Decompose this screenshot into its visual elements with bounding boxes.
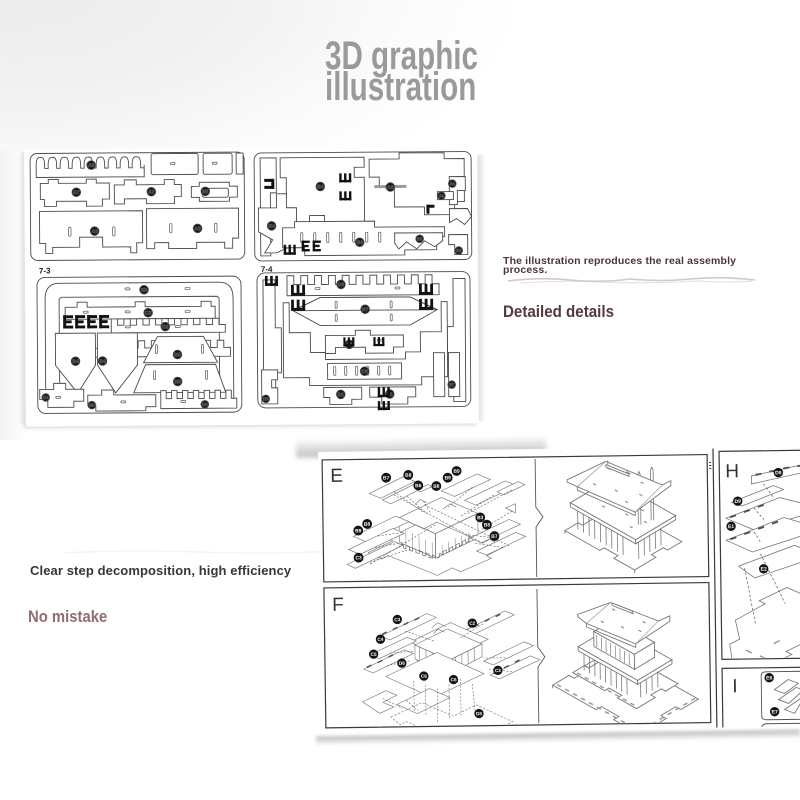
svg-text:D9: D9 <box>775 470 782 476</box>
svg-text:D6: D6 <box>399 661 405 666</box>
svg-text:D8: D8 <box>338 282 345 288</box>
svg-text:I: I <box>732 676 738 697</box>
svg-text:B9: B9 <box>445 475 452 481</box>
svg-text:A9: A9 <box>88 163 95 169</box>
svg-text:B4: B4 <box>72 359 79 365</box>
svg-text:C2: C2 <box>469 621 475 626</box>
svg-text:E7: E7 <box>772 709 778 715</box>
svg-text:E6: E6 <box>766 675 772 681</box>
svg-text:A6: A6 <box>387 185 394 191</box>
svg-text:E6: E6 <box>417 236 423 241</box>
svg-text:B8: B8 <box>174 352 181 358</box>
svg-text:B8: B8 <box>405 473 412 479</box>
svg-text:C3: C3 <box>495 668 501 673</box>
svg-text:E6: E6 <box>89 403 95 408</box>
svg-text:C6: C6 <box>421 674 427 679</box>
svg-text:B9: B9 <box>174 379 181 385</box>
svg-text:E7: E7 <box>449 382 455 387</box>
svg-text:C4: C4 <box>43 395 49 400</box>
svg-text:A3: A3 <box>91 229 98 235</box>
svg-text:C2: C2 <box>145 310 152 316</box>
svg-text:E9: E9 <box>456 248 462 253</box>
svg-text:E4: E4 <box>357 240 363 246</box>
svg-text:F: F <box>332 595 344 616</box>
svg-text:A7: A7 <box>148 189 155 195</box>
svg-text:D8: D8 <box>476 711 482 716</box>
svg-text:B4: B4 <box>268 224 275 230</box>
svg-text:D3: D3 <box>263 396 269 401</box>
svg-text:B8: B8 <box>484 522 491 528</box>
svg-text:E5: E5 <box>141 288 147 294</box>
svg-text:B6: B6 <box>415 483 422 489</box>
svg-text:B4: B4 <box>317 184 324 190</box>
svg-text:B7: B7 <box>362 307 369 313</box>
svg-text:C3: C3 <box>355 555 362 561</box>
svg-text:E2: E2 <box>761 567 767 573</box>
svg-text:C6: C6 <box>451 677 457 682</box>
svg-text:A1: A1 <box>439 193 445 198</box>
svg-text:B3: B3 <box>477 515 484 521</box>
svg-text:D9: D9 <box>734 499 741 505</box>
svg-text:C8: C8 <box>361 369 368 375</box>
svg-text:C4: C4 <box>377 637 383 642</box>
svg-text:D2: D2 <box>162 324 169 330</box>
svg-text:H: H <box>725 461 739 482</box>
svg-text:A2: A2 <box>194 226 201 232</box>
svg-text:C5: C5 <box>371 652 377 657</box>
svg-text:A1: A1 <box>450 181 456 186</box>
svg-text:D1: D1 <box>338 392 345 398</box>
svg-text:B7: B7 <box>383 475 390 481</box>
svg-text:D8: D8 <box>202 402 208 407</box>
svg-text:B7: B7 <box>491 534 498 540</box>
svg-text:B8: B8 <box>433 484 440 490</box>
svg-text:E: E <box>330 466 343 487</box>
svg-text:C3: C3 <box>394 617 400 622</box>
svg-text:B4: B4 <box>99 359 106 365</box>
svg-text:A7: A7 <box>73 190 80 196</box>
svg-text:B9: B9 <box>453 469 460 475</box>
svg-text:B9: B9 <box>355 528 362 534</box>
svg-text:E8: E8 <box>202 189 208 195</box>
svg-text:B8: B8 <box>364 522 371 528</box>
svg-text:7-3: 7-3 <box>39 266 51 275</box>
svg-text:E1: E1 <box>728 524 734 530</box>
